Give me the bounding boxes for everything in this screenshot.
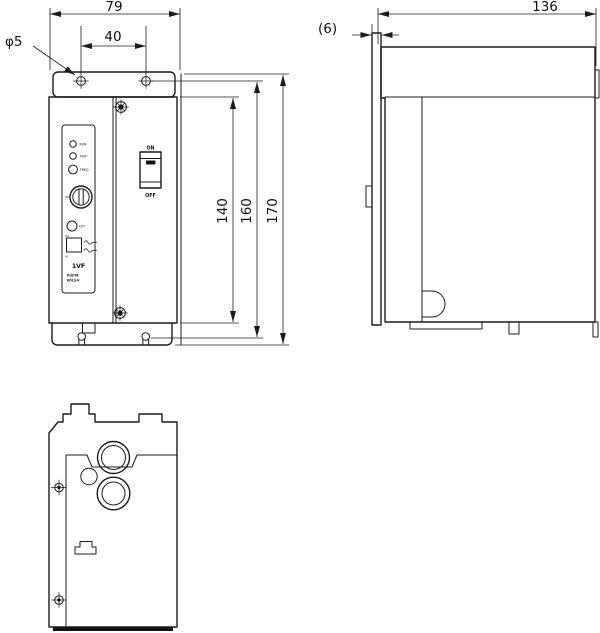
led-freq-label: FREQ bbox=[80, 168, 89, 172]
dim-hole-dia-label: φ5 bbox=[5, 34, 23, 50]
base-strip bbox=[53, 628, 173, 632]
slide-switch-top-label: EA bbox=[66, 234, 70, 238]
bottom-slot-left bbox=[78, 333, 86, 345]
led-trip: TRIP bbox=[70, 153, 87, 160]
dim-overall-height: 170 bbox=[175, 74, 289, 345]
led-freq: FREQ bbox=[69, 165, 89, 174]
power-switch-off-label: OFF bbox=[145, 193, 156, 199]
bottom-tab bbox=[83, 323, 96, 333]
rotary-knob-icon bbox=[66, 186, 93, 208]
technical-drawing-page: 79 40 φ5 bbox=[0, 0, 600, 633]
small-gland bbox=[81, 468, 97, 484]
side-body bbox=[381, 47, 595, 322]
mounting-hole-left bbox=[74, 74, 89, 89]
front-bottom-lip bbox=[593, 322, 598, 337]
plate-screw-top bbox=[52, 480, 67, 495]
mounting-hole-right bbox=[139, 74, 154, 89]
plate-screw-bottom bbox=[52, 593, 67, 608]
dim-plate-offset-label: (6) bbox=[318, 21, 337, 37]
model-label: 1VF bbox=[72, 263, 85, 270]
plate-tab bbox=[366, 186, 372, 207]
bottom-slot-right bbox=[142, 333, 150, 345]
power-switch: ON OFF bbox=[140, 146, 161, 200]
side-view: 136 (6) bbox=[318, 0, 599, 337]
power-switch-on-label: ON bbox=[146, 146, 154, 152]
dim-plate-offset: (6) bbox=[318, 21, 399, 44]
dim-mounting-height-label: 160 bbox=[239, 198, 255, 224]
bottom-view bbox=[49, 404, 177, 631]
drawing-canvas: 79 40 φ5 bbox=[0, 0, 600, 633]
ext-pot-label: EXT bbox=[79, 224, 85, 228]
led-run-label: RUN bbox=[80, 142, 88, 146]
model-sub-line2: KOLS-V bbox=[67, 279, 80, 283]
dim-overall-height-label: 170 bbox=[265, 198, 281, 224]
mounting-flange bbox=[53, 72, 175, 97]
bottom-pin bbox=[509, 322, 519, 334]
mounting-plate bbox=[372, 33, 381, 325]
dim-hole-diameter: φ5 bbox=[5, 34, 75, 75]
front-view: 79 40 φ5 bbox=[5, 0, 289, 345]
slide-switch: EA M bbox=[66, 234, 97, 259]
dim-body-height-label: 140 bbox=[215, 198, 231, 224]
gland-plate-edge bbox=[66, 455, 177, 467]
slide-switch-bottom-label: M bbox=[66, 255, 69, 259]
dim-body-height: 140 bbox=[180, 97, 239, 323]
dim-hole-pitch-label: 40 bbox=[104, 29, 121, 45]
dim-front-width-label: 79 bbox=[105, 0, 122, 15]
cable-clamp bbox=[75, 542, 96, 555]
led-run: RUN bbox=[70, 141, 87, 148]
bottom-flange bbox=[52, 323, 172, 345]
cable-gland-bottom bbox=[97, 477, 130, 510]
cable-gland-top bbox=[98, 442, 130, 474]
dim-mounting-height: 160 bbox=[151, 81, 263, 338]
led-trip-label: TRIP bbox=[79, 154, 87, 158]
dim-depth: 136 bbox=[378, 0, 596, 66]
dim-depth-label: 136 bbox=[532, 0, 558, 15]
bottom-outline bbox=[49, 404, 177, 627]
cover-seam bbox=[113, 97, 116, 323]
ext-pot: EXT bbox=[67, 221, 85, 231]
dim-hole-pitch: 40 bbox=[81, 26, 146, 74]
model-sub-line1: KUJ/TR bbox=[67, 274, 79, 278]
side-boss bbox=[422, 291, 445, 317]
bottom-rail bbox=[410, 322, 482, 329]
cover-screw-bottom bbox=[113, 306, 128, 321]
